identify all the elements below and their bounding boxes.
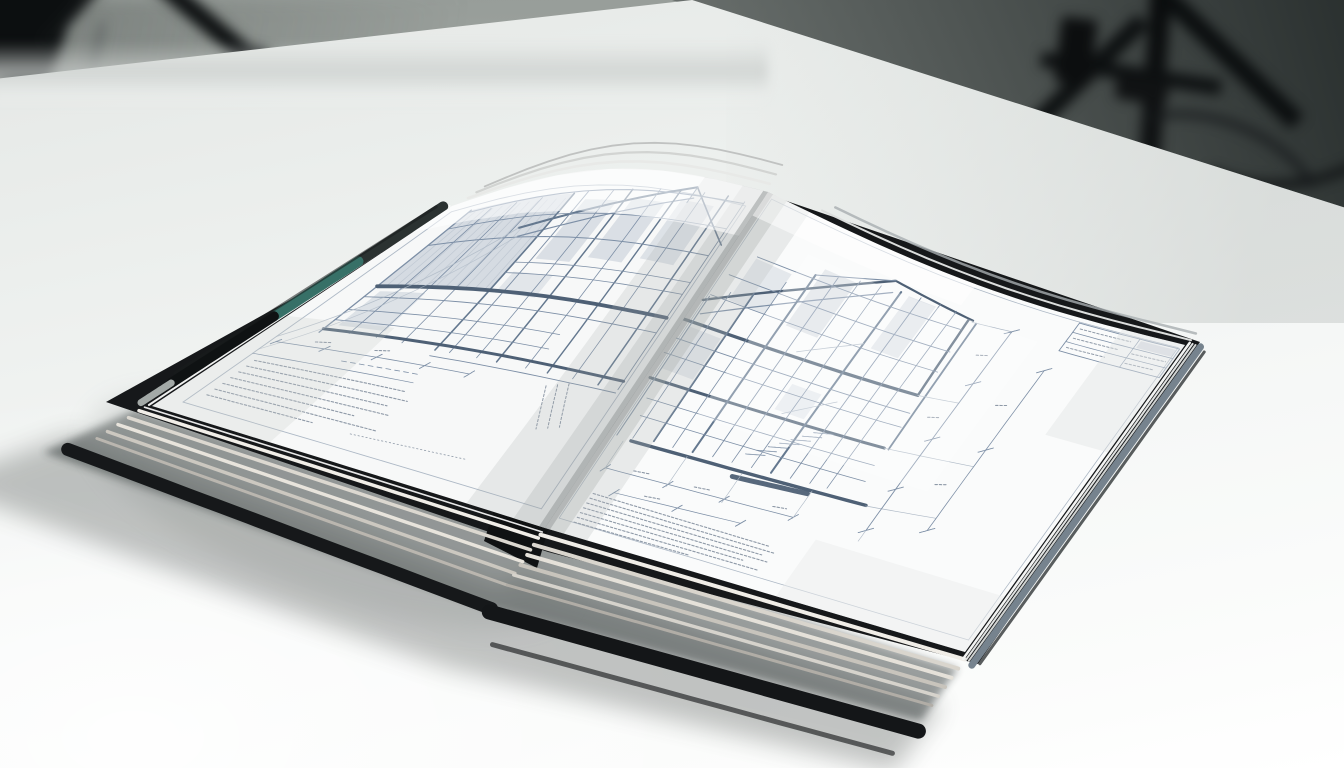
studio-photo bbox=[0, 0, 1344, 768]
open-blueprint-book bbox=[0, 0, 1344, 768]
